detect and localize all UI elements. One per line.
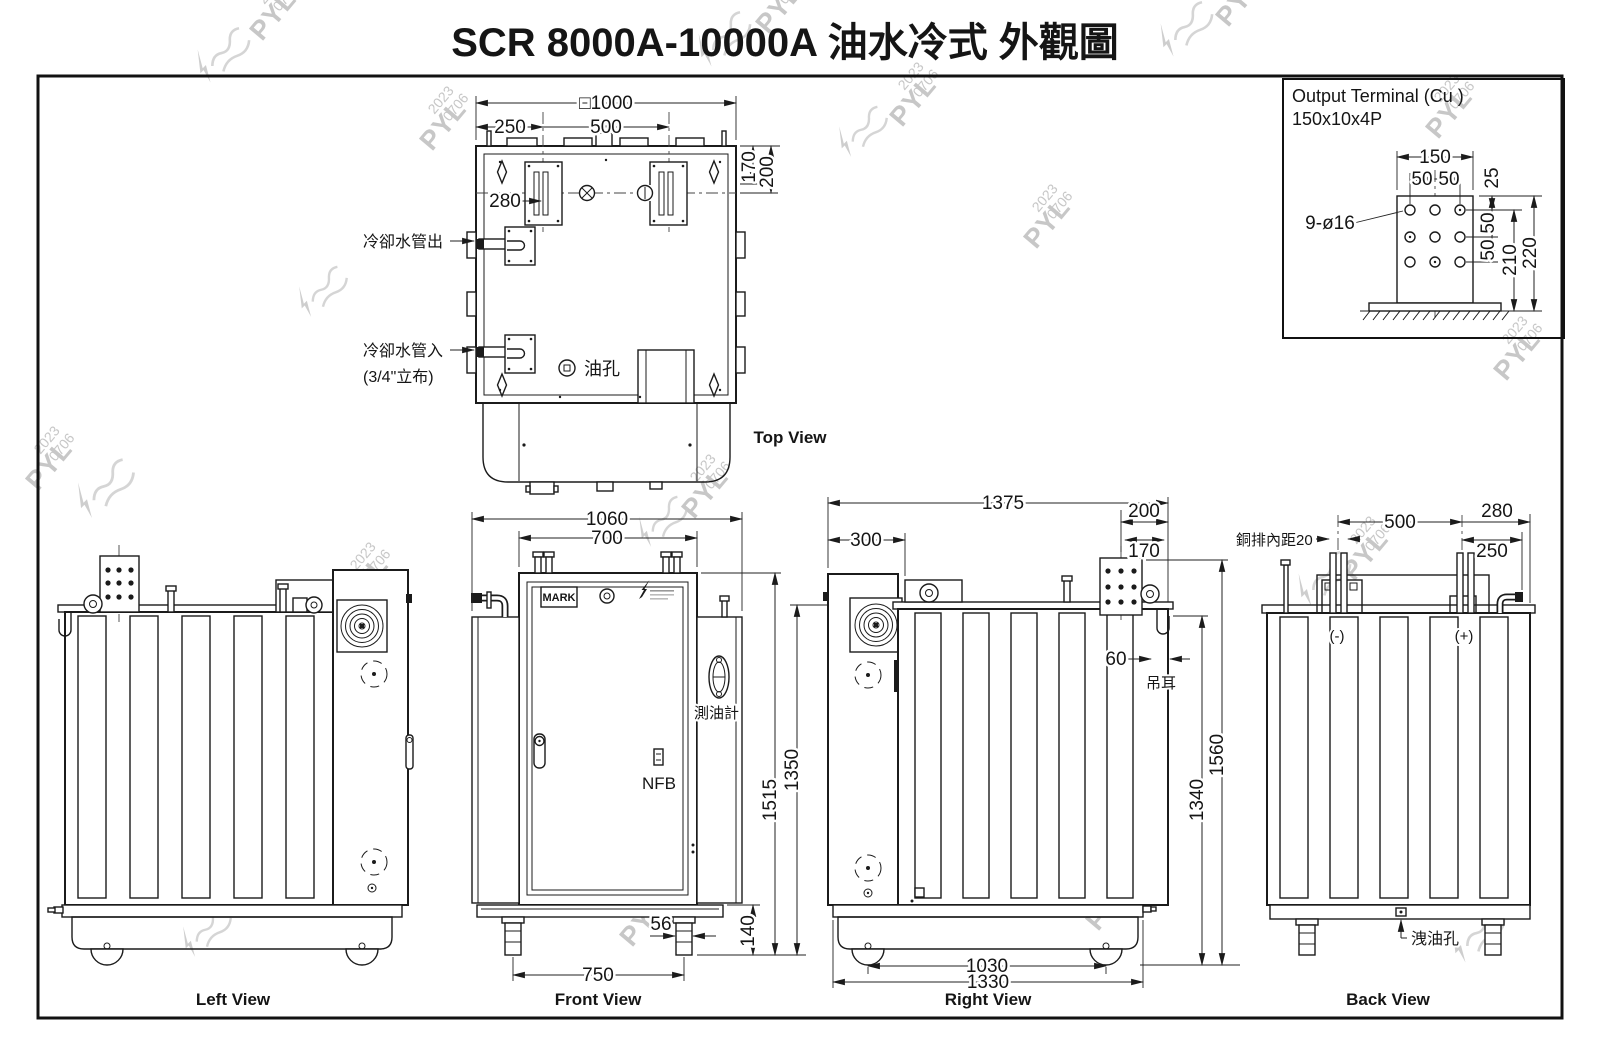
dim-300: 300 [850,530,882,551]
dim-50c: 50 [1478,212,1499,233]
fan-cabinet [333,570,413,905]
front-view-label: Front View [555,990,642,1009]
dim-1060: 1060 [586,509,628,530]
dim-500: 500 [590,117,622,138]
dim-700: 700 [591,528,623,549]
water-inlet-label: 冷卻水管入 [363,342,443,360]
dim-200: 200 [1128,501,1160,522]
left-view-label: Left View [196,990,271,1009]
drawing-page: PYL 2023 0706 [0,0,1600,1056]
drawing-title: SCR 8000A-10000A 油水冷式 外觀圖 [451,21,1119,65]
water-inlet-size-label: (3/4"立布) [363,368,434,386]
right-view-label: Right View [945,990,1032,1009]
dim-60: 60 [1105,649,1126,670]
dim-170: 170 [1128,541,1160,562]
dim-210: 210 [1500,244,1521,276]
ground-hatch [1363,311,1509,320]
oil-hole-icon [559,360,575,376]
dim-50b: 50 [1438,169,1459,190]
dim-1375: 1375 [982,493,1024,514]
wheel-right [346,949,378,965]
water-outlet-label: 冷卻水管出 [363,233,443,251]
oil-gauge-label: 測油計 [694,705,739,722]
dim-280: 280 [1481,501,1513,522]
dim-150: 150 [1419,147,1451,168]
busbar-slot-plate-left [525,162,562,225]
pipe-cap [471,593,482,603]
caster-left [502,917,524,955]
dim-750: 750 [582,965,614,986]
dim-overall-width: □1000 [579,93,633,114]
busbar-slot-plate-right [650,162,687,225]
drawing-canvas: PYL 2023 0706 [0,0,1600,1056]
dim-1560: 1560 [1207,734,1228,776]
pulley-icon [84,595,102,613]
radiator-left [472,617,519,903]
oil-gauge [709,656,729,698]
dim-250: 250 [494,117,526,138]
top-view-label: Top View [753,428,827,447]
lifting-lug-label: 吊耳 [1146,675,1176,692]
datum-symbol-cross [579,185,595,201]
detail-title-line1: Output Terminal (Cu ) [1292,86,1464,106]
dim-200: 200 [757,156,778,188]
positive-terminal-label: (+) [1455,628,1474,645]
tank-lid [1262,605,1535,613]
holes-note: 9-ø16 [1305,213,1355,234]
dim-280: 280 [489,191,521,212]
wheel-left [852,949,884,965]
caster-right [1482,919,1504,955]
dim-1515: 1515 [760,779,781,821]
dim-220: 220 [1520,237,1541,269]
output-terminal-plate [100,545,139,622]
oil-hole-label: 油孔 [584,359,620,379]
wheel-right [1090,949,1122,965]
nfb-breaker [654,749,663,765]
dim-50d: 50 [1478,239,1499,260]
dim-1340: 1340 [1187,779,1208,821]
base-frame [833,905,1143,917]
right-view: 1375 300 200 170 60 吊耳 1340 1560 1030 13… [823,493,1240,1009]
indicator-lamp-icon [600,589,614,603]
dim-50a: 50 [1411,169,1432,190]
mark-label: MARK [543,592,576,604]
base-frame [62,905,402,917]
back-view-label: Back View [1346,990,1431,1009]
terminal-base [1369,303,1501,311]
drain-hole-label: 洩油孔 [1411,930,1459,948]
nfb-label: NFB [642,774,676,793]
left-view: Left View [48,545,413,1009]
dim-500: 500 [1384,512,1416,533]
dim-1350: 1350 [782,749,803,791]
dim-140: 140 [738,915,759,947]
dim-25: 25 [1482,167,1503,188]
busbar-pair-positive [1457,553,1474,613]
dim-250: 250 [1476,541,1508,562]
datum-symbol-slot [637,185,653,201]
caster-left [1296,919,1318,955]
base-skirt [72,917,392,949]
output-terminal-detail: Output Terminal (Cu ) 150x10x4P 150 50 5… [1283,79,1564,338]
busbar-gap-label: 銅排內距20 [1236,532,1313,549]
base-frame [477,905,723,917]
negative-terminal-label: (-) [1330,628,1345,645]
detail-title-line2: 150x10x4P [1292,109,1382,129]
wheel-left [91,949,123,965]
dim-56: 56 [650,914,671,935]
pulley-icon [1141,585,1159,603]
back-view: (-) (+) 500 280 250 銅排內距20 洩油孔 Back View [1236,501,1535,1009]
caster-right [673,917,695,955]
